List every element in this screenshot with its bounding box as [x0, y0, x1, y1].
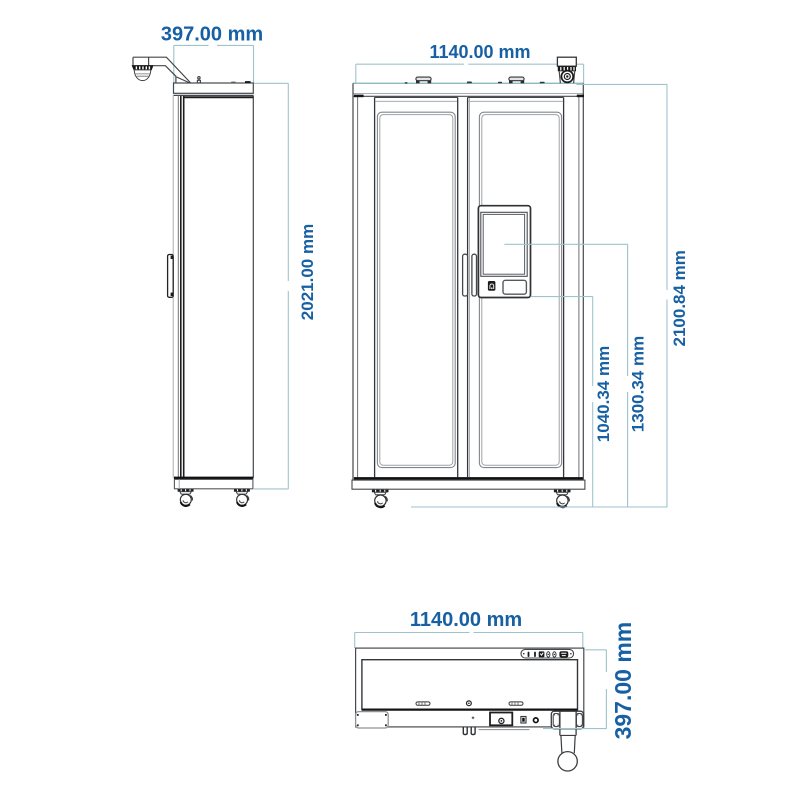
svg-text:2100.84 mm: 2100.84 mm	[670, 250, 689, 346]
svg-text:397.00 mm: 397.00 mm	[161, 24, 263, 46]
svg-text:1300.34 mm: 1300.34 mm	[629, 336, 648, 432]
svg-text:2021.00 mm: 2021.00 mm	[298, 224, 317, 320]
svg-text:1140.00 mm: 1140.00 mm	[410, 609, 522, 631]
svg-text:397.00 mm: 397.00 mm	[610, 622, 636, 740]
svg-text:1140.00 mm: 1140.00 mm	[429, 42, 530, 62]
svg-text:1040.34 mm: 1040.34 mm	[594, 346, 613, 442]
